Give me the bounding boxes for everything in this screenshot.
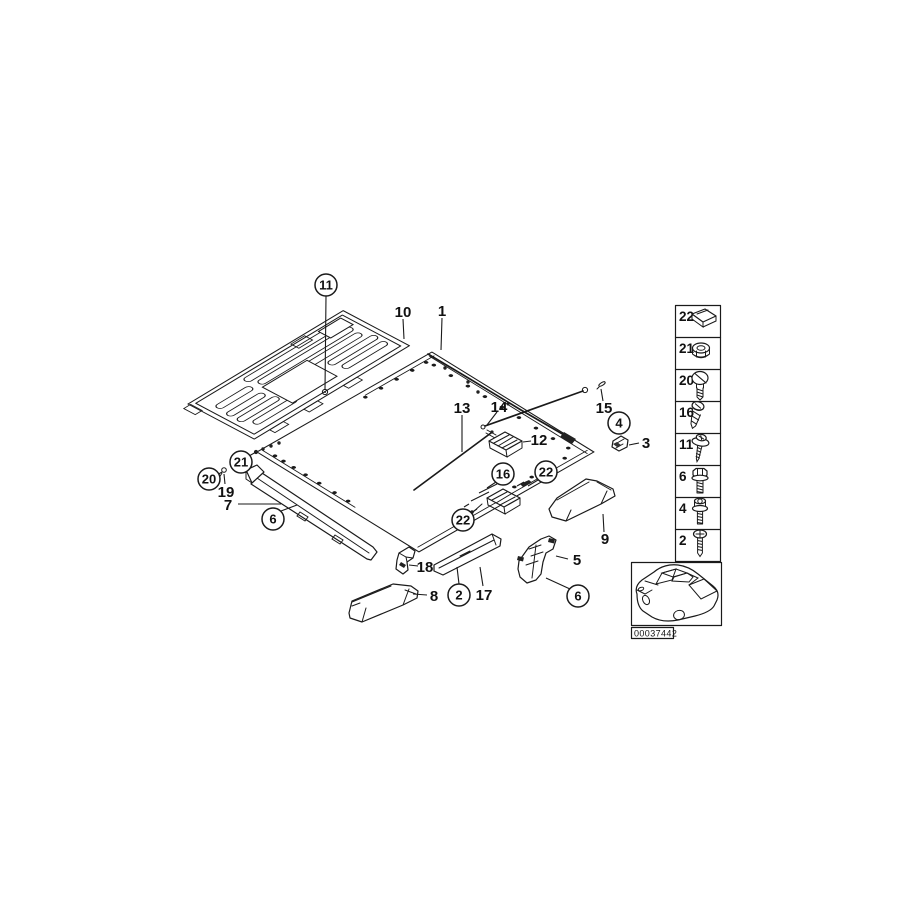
callout-label-15[interactable]: 15 [596,400,613,417]
callout-label-1[interactable]: 1 [438,303,446,320]
legend-table: 22 21 20 16 11 6 4 2 [676,306,721,562]
bracket-18 [396,547,415,574]
svg-text:14: 14 [491,399,508,416]
callout-label-13[interactable]: 13 [454,400,471,417]
callout-label-10[interactable]: 10 [395,304,412,321]
callout-circled-22[interactable]: 22 [535,461,557,483]
svg-text:20: 20 [202,472,216,487]
svg-text:21: 21 [234,455,248,470]
callout-circled-16[interactable]: 16 [492,463,514,485]
callout-circled-11[interactable]: 11 [315,274,337,296]
svg-text:6: 6 [574,589,581,604]
legend-number: 2 [679,533,687,548]
callout-label-5[interactable]: 5 [573,552,581,569]
svg-text:8: 8 [430,588,438,605]
callout-circled-22[interactable]: 22 [452,509,474,531]
diagram-stamp-id: 00037442 [634,629,677,639]
callout-label-9[interactable]: 9 [601,531,609,548]
rail-17 [434,534,501,575]
svg-text:1: 1 [438,303,446,320]
callout-circled-4[interactable]: 4 [608,412,630,434]
wedge-trim-9 [549,479,615,521]
svg-text:6: 6 [269,512,276,527]
support-bracket-5 [517,536,556,583]
svg-text:22: 22 [539,465,553,480]
svg-text:3: 3 [642,435,650,452]
svg-text:16: 16 [496,467,510,482]
legend-number: 4 [679,501,687,516]
wedge-trim-8 [349,584,418,622]
svg-text:10: 10 [395,304,412,321]
callout-circled-2[interactable]: 2 [448,584,470,606]
svg-text:17: 17 [476,587,493,604]
callout-label-18[interactable]: 18 [417,559,434,576]
callout-label-8[interactable]: 8 [430,588,438,605]
svg-text:18: 18 [417,559,434,576]
callout-circled-6[interactable]: 6 [262,508,284,530]
callout-circled-6[interactable]: 6 [567,585,589,607]
svg-text:11: 11 [319,278,333,293]
svg-text:22: 22 [456,513,470,528]
pin-15 [597,381,606,389]
callout-label-14[interactable]: 14 [491,399,508,416]
svg-text:12: 12 [531,432,548,449]
svg-text:2: 2 [455,588,462,603]
parts-diagram-canvas: 11101131415431216222292120197618821756 2… [0,0,900,900]
callout-label-7[interactable]: 7 [224,497,232,514]
svg-text:4: 4 [615,416,623,431]
svg-text:5: 5 [573,552,581,569]
parts-diagram-page: 11101131415431216222292120197618821756 2… [0,0,900,900]
svg-text:9: 9 [601,531,609,548]
legend-number: 11 [679,437,694,452]
callout-circled-21[interactable]: 21 [230,451,252,473]
callout-label-17[interactable]: 17 [476,587,493,604]
svg-text:13: 13 [454,400,471,417]
legend-number: 20 [679,373,694,388]
callout-label-3[interactable]: 3 [642,435,650,452]
car-location-box: 00037442 [632,563,722,639]
clip-3 [612,436,628,451]
callout-label-12[interactable]: 12 [531,432,548,449]
legend-number: 6 [679,469,687,484]
svg-text:15: 15 [596,400,613,417]
svg-text:7: 7 [224,497,232,514]
